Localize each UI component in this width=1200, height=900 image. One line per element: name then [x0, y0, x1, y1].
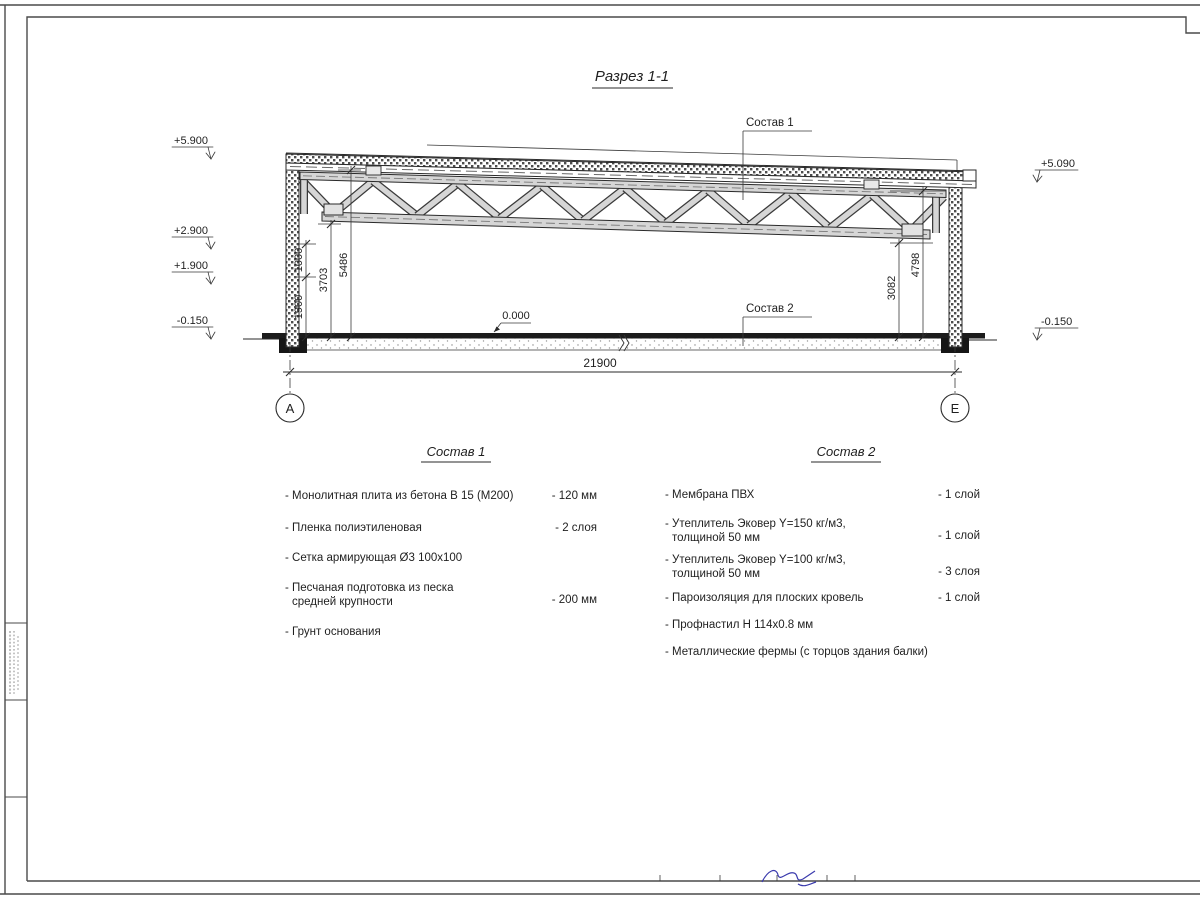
truss-diagonal	[791, 193, 830, 228]
signature-squiggle	[762, 871, 816, 886]
elev-1900: +1.900	[172, 260, 215, 284]
truss-diagonal	[373, 181, 417, 216]
list-item-value: - 1 слой	[938, 592, 980, 604]
list-item: - Мембрана ПВХ	[665, 489, 755, 501]
list-item-value: - 1 слой	[938, 530, 980, 542]
truss-diagonal	[542, 186, 583, 221]
wall-right	[949, 172, 962, 347]
elevation-marks-left: +5.900 +2.900 +1.900 -0.150	[172, 135, 215, 339]
dim-5486: 5486	[338, 253, 350, 277]
list-item-value: - 2 слоя	[555, 522, 597, 534]
list-item-value: - 120 мм	[552, 490, 597, 502]
page-title: Разрез 1-1	[595, 68, 669, 85]
list-item: - Пароизоляция для плоских кровель	[665, 592, 864, 604]
list-item-value: - 1 слой	[938, 489, 980, 501]
sostav2-callout-label: Состав 2	[746, 303, 794, 315]
axis-label-E: Е	[951, 401, 960, 416]
truss-diagonal	[458, 183, 500, 218]
axis-label-A: А	[286, 401, 295, 416]
svg-text:+5.900: +5.900	[174, 135, 208, 147]
elev-minus0150-left: -0.150	[172, 315, 215, 339]
sostav1-heading: Состав 1	[427, 444, 486, 459]
list-item: - Грунт основания	[285, 626, 381, 638]
roof-edge-cap	[963, 170, 976, 181]
left-margin-stamp	[5, 623, 27, 797]
sostav2-heading: Состав 2	[817, 444, 876, 459]
list-item: - Утеплитель Эковер Y=100 кг/м3,	[665, 554, 846, 566]
sostav1-callout-label: Состав 1	[746, 117, 794, 129]
elev-2900: +2.900	[172, 225, 215, 249]
title-block: Разрез 1-1	[592, 68, 673, 88]
svg-text:-0.150: -0.150	[177, 315, 208, 327]
truss-gusset-1	[366, 166, 381, 175]
list-item: - Профнастил Н 114х0.8 мм	[665, 619, 813, 631]
sostav2-list: Состав 2 - Мембрана ПВХ - 1 слой - Утепл…	[665, 444, 980, 658]
bottom-edge-marks	[660, 871, 855, 886]
truss-diagonal	[417, 183, 458, 215]
list-item: - Пленка полиэтиленовая	[285, 522, 422, 534]
floor-slab	[243, 333, 997, 353]
elev-5900: +5.900	[172, 135, 215, 159]
elev-minus0150-right: -0.150	[1033, 316, 1078, 340]
list-item: - Утеплитель Эковер Y=150 кг/м3,	[665, 518, 846, 530]
list-item: - Сетка армирующая Ø3 100х100	[285, 552, 462, 564]
dim-3703: 3703	[318, 268, 330, 292]
list-item-line2: средней крупности	[292, 596, 393, 608]
elev-5090: +5.090	[1033, 158, 1078, 182]
list-item-value: - 200 мм	[552, 594, 597, 606]
svg-text:+5.090: +5.090	[1041, 158, 1075, 170]
truss-diagonal	[749, 193, 791, 226]
list-item: - Монолитная плита из бетона В 15 (М200)	[285, 490, 514, 502]
zero-level-mark: 0.000	[494, 310, 531, 332]
truss-diagonal	[666, 190, 708, 223]
dim-3082: 3082	[886, 276, 898, 300]
list-item: - Песчаная подготовка из песка	[285, 582, 454, 594]
list-item: - Металлические фермы (с торцов здания б…	[665, 646, 928, 658]
dim-1900: 1900	[293, 295, 305, 319]
truss-diagonal	[625, 188, 666, 223]
drawing-sheet: Состав 1 Состав 2 0.000 +5.900 +2.900 +1…	[0, 0, 1200, 900]
svg-text:+2.900: +2.900	[174, 225, 208, 237]
truss-diagonal	[500, 186, 542, 219]
dim-1000: 1000	[293, 248, 305, 272]
truss-diagonal	[583, 188, 625, 221]
truss-gusset-2	[864, 180, 879, 189]
svg-text:+1.900: +1.900	[174, 260, 208, 272]
list-item-value: - 3 слоя	[938, 566, 980, 578]
dim-21900: 21900	[583, 356, 617, 370]
section-drawing-svg: Состав 1 Состав 2 0.000 +5.900 +2.900 +1…	[0, 0, 1200, 900]
truss-seat-left	[324, 204, 343, 215]
svg-text:-0.150: -0.150	[1041, 316, 1072, 328]
truss-diagonal	[830, 195, 872, 228]
dim-4798: 4798	[910, 253, 922, 277]
truss-seat-right	[902, 224, 923, 236]
axis-bubbles: А Е	[276, 394, 969, 422]
list-item-line2: толщиной 50 мм	[672, 568, 760, 580]
list-item-line2: толщиной 50 мм	[672, 532, 760, 544]
sostav1-list: Состав 1 - Монолитная плита из бетона В …	[285, 444, 597, 638]
zero-level-label: 0.000	[502, 310, 530, 322]
elevation-marks-right: +5.090 -0.150	[1033, 158, 1078, 340]
